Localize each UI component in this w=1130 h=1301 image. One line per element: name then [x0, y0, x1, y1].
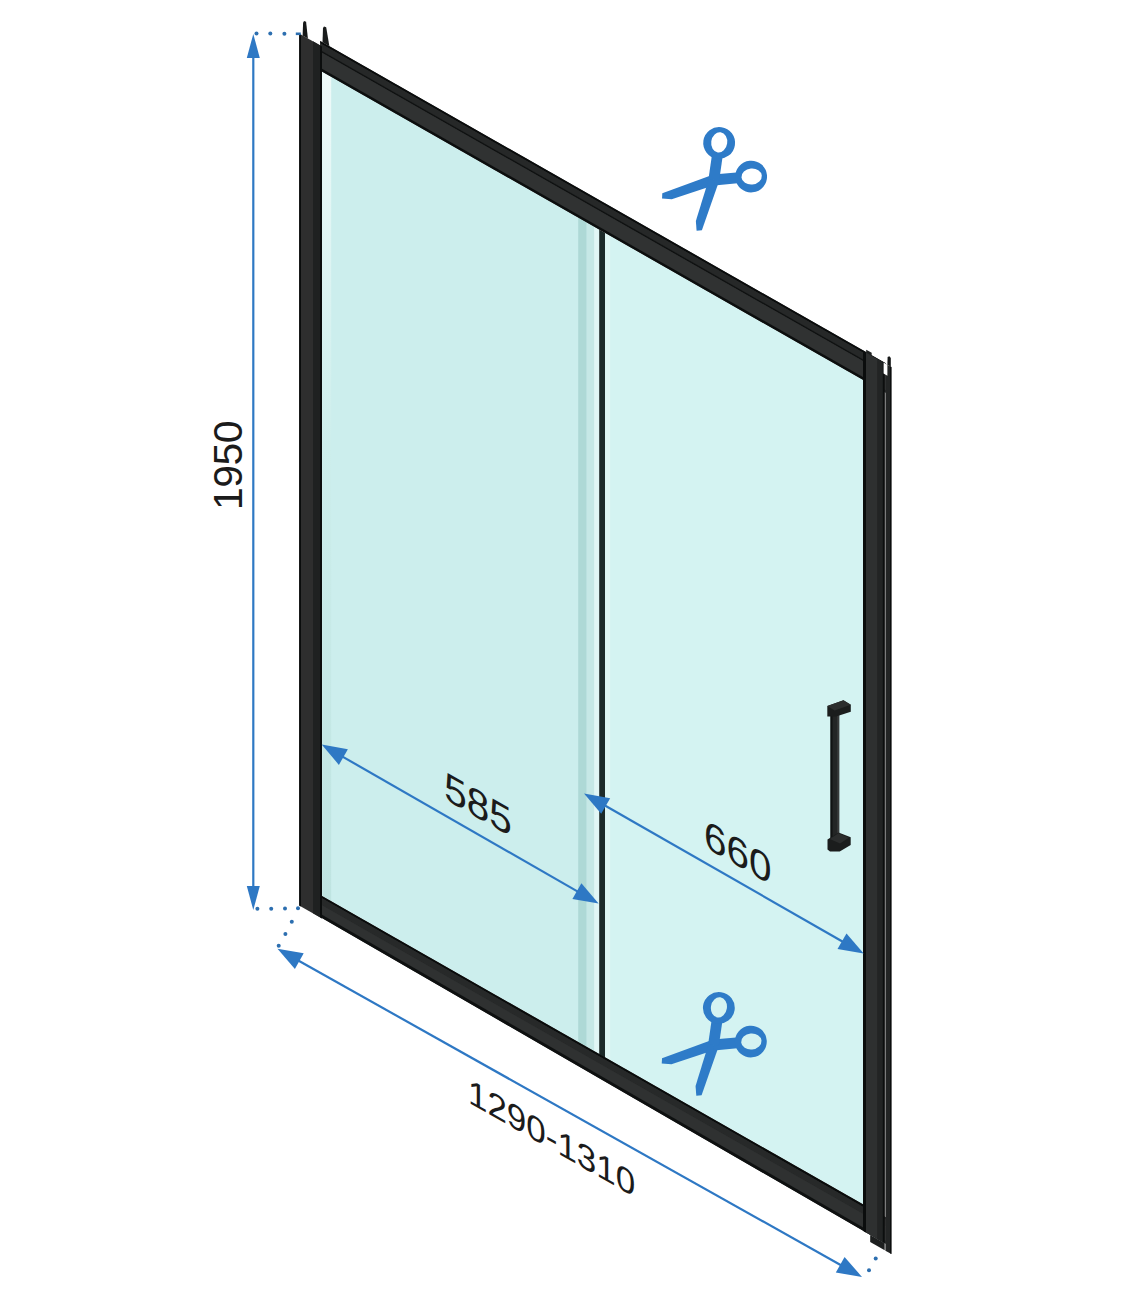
svg-text:1290-1310: 1290-1310 [468, 1071, 635, 1205]
svg-text:1950: 1950 [205, 421, 251, 510]
